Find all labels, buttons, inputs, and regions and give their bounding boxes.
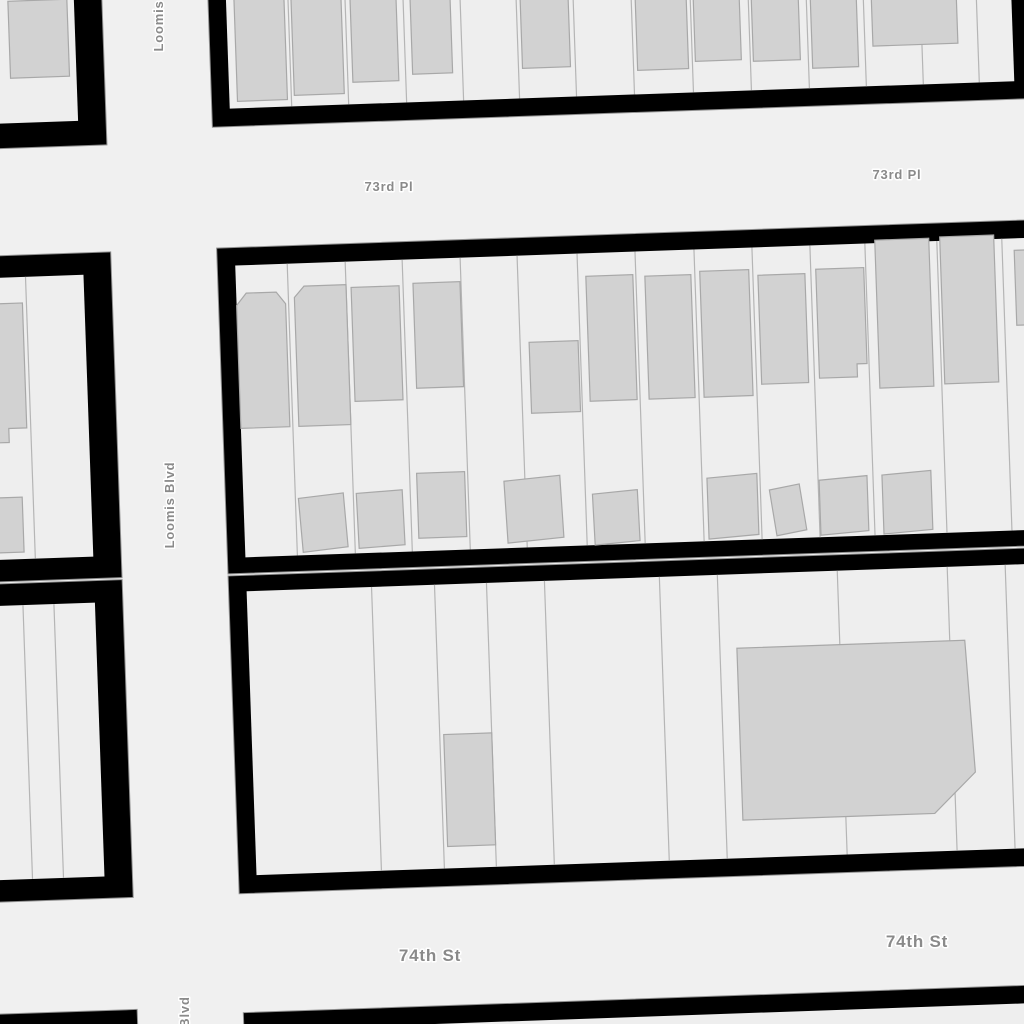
map-viewport[interactable]: 73rd Pl73rd Pl74th St74th StLoomisLoomis… [0, 0, 1024, 1024]
building-footprint [871, 0, 958, 46]
building-footprint [634, 0, 689, 70]
building-footprint [940, 235, 999, 384]
building-footprint [645, 275, 695, 400]
building-footprint [409, 0, 453, 74]
building-footprint [692, 0, 742, 61]
building-footprint [750, 0, 801, 61]
street-label: Loomis Blvd [162, 462, 177, 549]
building-footprint [236, 292, 290, 429]
building-footprint [8, 0, 70, 78]
building-footprint [417, 472, 467, 539]
building-footprint [0, 303, 27, 444]
building-footprint [349, 0, 399, 82]
building-footprint [586, 275, 637, 402]
building-footprint [875, 238, 934, 388]
street-label: 74th St [886, 932, 948, 951]
building-footprint [298, 493, 348, 553]
building-footprint [816, 268, 868, 379]
building-footprint [707, 473, 759, 539]
building-footprint [504, 475, 564, 543]
building-footprint [819, 476, 869, 536]
building-footprint [809, 0, 859, 68]
building-footprint [294, 285, 351, 427]
building-footprint [233, 0, 288, 101]
building-footprint [0, 497, 24, 553]
building-footprint [290, 0, 344, 95]
building-footprint [592, 490, 640, 546]
building-footprint [519, 0, 571, 68]
street-label: 73rd Pl [873, 167, 922, 182]
building-footprint [758, 274, 809, 385]
building-footprint [700, 270, 753, 398]
building-footprint [882, 470, 933, 534]
building-footprint [356, 490, 405, 549]
building-footprint [351, 286, 403, 402]
building-footprint [413, 282, 464, 389]
street-label: 74th St [399, 946, 461, 965]
street-label: Blvd [177, 996, 192, 1024]
city-block-block-west-south [0, 603, 104, 882]
street-label: Loomis [151, 0, 166, 51]
building-footprint [529, 341, 580, 414]
building-footprint [444, 733, 496, 847]
map-canvas[interactable]: 73rd Pl73rd Pl74th St74th StLoomisLoomis… [0, 0, 1024, 1024]
building-footprint [737, 640, 977, 820]
street-label: 73rd Pl [365, 179, 414, 194]
